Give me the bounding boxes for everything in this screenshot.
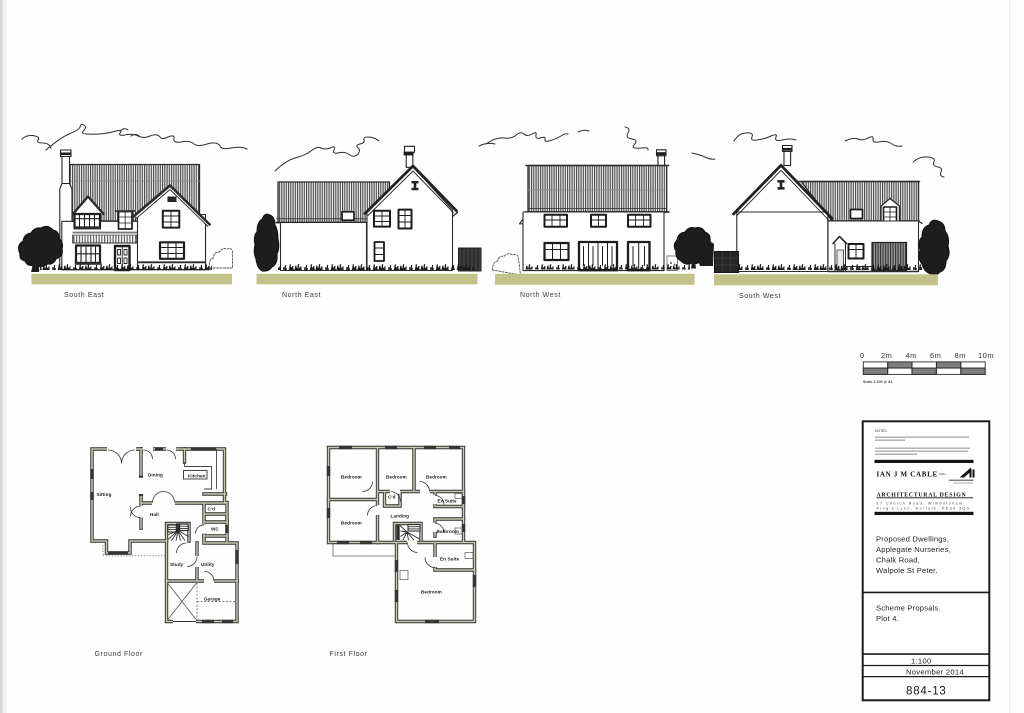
svg-text:Garage: Garage: [204, 597, 221, 602]
svg-text:First Floor: First Floor: [330, 651, 368, 658]
svg-text:North East: North East: [282, 292, 321, 299]
svg-text:17 Church Road, Wimbotsham,: 17 Church Road, Wimbotsham,: [877, 501, 966, 505]
svg-text:November 2014: November 2014: [906, 668, 964, 677]
svg-text:Bedroom: Bedroom: [386, 475, 407, 480]
svg-text:Study: Study: [170, 562, 184, 567]
svg-text:North West: North West: [520, 292, 561, 299]
svg-text:Bedroom: Bedroom: [341, 475, 362, 480]
svg-text:Bedroom: Bedroom: [426, 475, 447, 480]
svg-text:South East: South East: [64, 292, 104, 299]
svg-text:Scale 1:100 @ A1: Scale 1:100 @ A1: [863, 380, 893, 384]
svg-text:Bathroom: Bathroom: [437, 529, 460, 534]
svg-text:Kitchen: Kitchen: [188, 474, 206, 479]
svg-text:Bedroom: Bedroom: [341, 521, 362, 526]
svg-text:Bedroom: Bedroom: [421, 590, 442, 595]
svg-text:Chalk Road,: Chalk Road,: [876, 556, 920, 565]
svg-text:C'd: C'd: [388, 495, 396, 500]
svg-text:South West: South West: [739, 293, 781, 300]
svg-text:NOTES.: NOTES.: [875, 429, 888, 433]
svg-text:Proposed Dwellings,: Proposed Dwellings,: [876, 535, 949, 544]
svg-text:6m: 6m: [930, 351, 941, 360]
svg-text:Walpole St Peter.: Walpole St Peter.: [876, 566, 938, 575]
svg-text:Utility: Utility: [201, 562, 215, 567]
svg-text:En Suite: En Suite: [438, 499, 458, 504]
svg-text:C'd: C'd: [208, 507, 216, 512]
svg-text:4m: 4m: [906, 351, 917, 360]
svg-text:Ground Floor: Ground Floor: [95, 651, 144, 658]
svg-text:King's Lynn, Norfolk. PE34: King's Lynn, Norfolk. PE34 3QG: [877, 507, 971, 511]
svg-text:Scheme Propsals.: Scheme Propsals.: [876, 604, 941, 613]
svg-text:IAN J M CABLE: IAN J M CABLE: [877, 471, 938, 479]
svg-text:Applegate Nurseries,: Applegate Nurseries,: [876, 545, 951, 554]
svg-text:Landing: Landing: [391, 514, 410, 519]
svg-text:10m: 10m: [978, 351, 994, 360]
svg-text:Plot 4.: Plot 4.: [876, 614, 899, 623]
svg-text:En Suite: En Suite: [440, 557, 460, 562]
svg-text:2m: 2m: [881, 351, 892, 360]
svg-text:WC: WC: [211, 527, 219, 532]
svg-text:Hall: Hall: [150, 512, 159, 517]
svg-text:0: 0: [860, 351, 865, 360]
svg-text:RIBA: RIBA: [939, 472, 947, 476]
svg-text:8m: 8m: [955, 351, 966, 360]
svg-text:Sitting: Sitting: [97, 492, 112, 497]
svg-text:1:100: 1:100: [911, 657, 932, 666]
svg-text:884-13: 884-13: [906, 686, 947, 698]
svg-text:Dining: Dining: [148, 473, 163, 478]
